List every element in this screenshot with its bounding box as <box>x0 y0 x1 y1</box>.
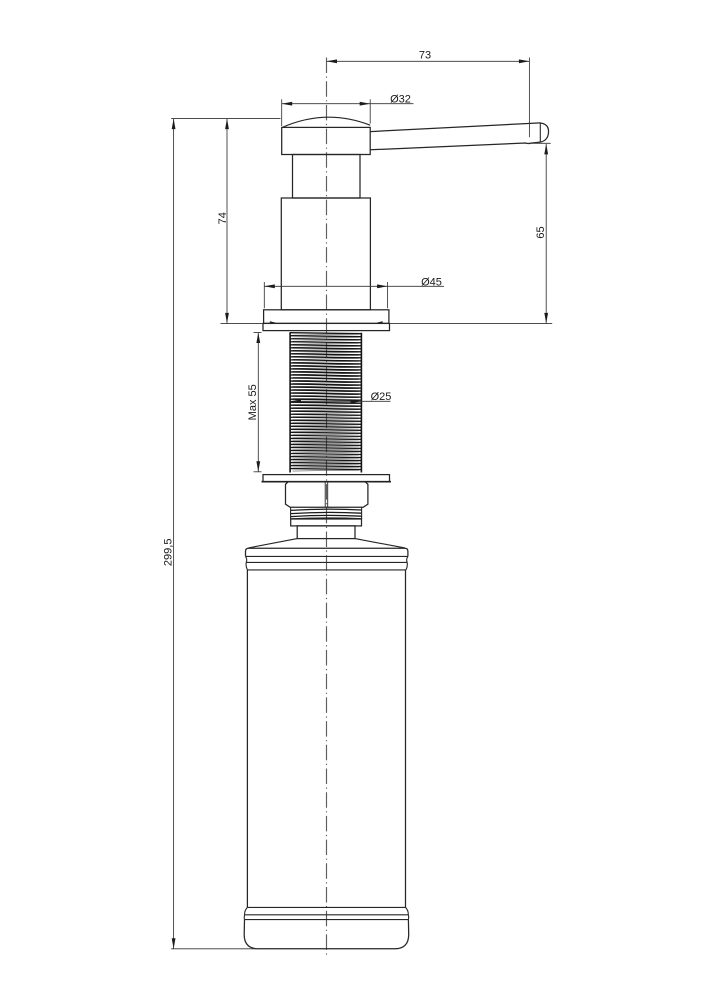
svg-text:Ø25: Ø25 <box>371 391 392 403</box>
svg-text:Ø32: Ø32 <box>390 94 411 106</box>
svg-text:74: 74 <box>217 212 229 224</box>
svg-text:299,5: 299,5 <box>162 539 174 567</box>
svg-text:65: 65 <box>535 226 547 238</box>
svg-text:Ø45: Ø45 <box>421 276 442 288</box>
svg-text:73: 73 <box>419 50 431 62</box>
svg-text:Max 55: Max 55 <box>247 384 259 420</box>
